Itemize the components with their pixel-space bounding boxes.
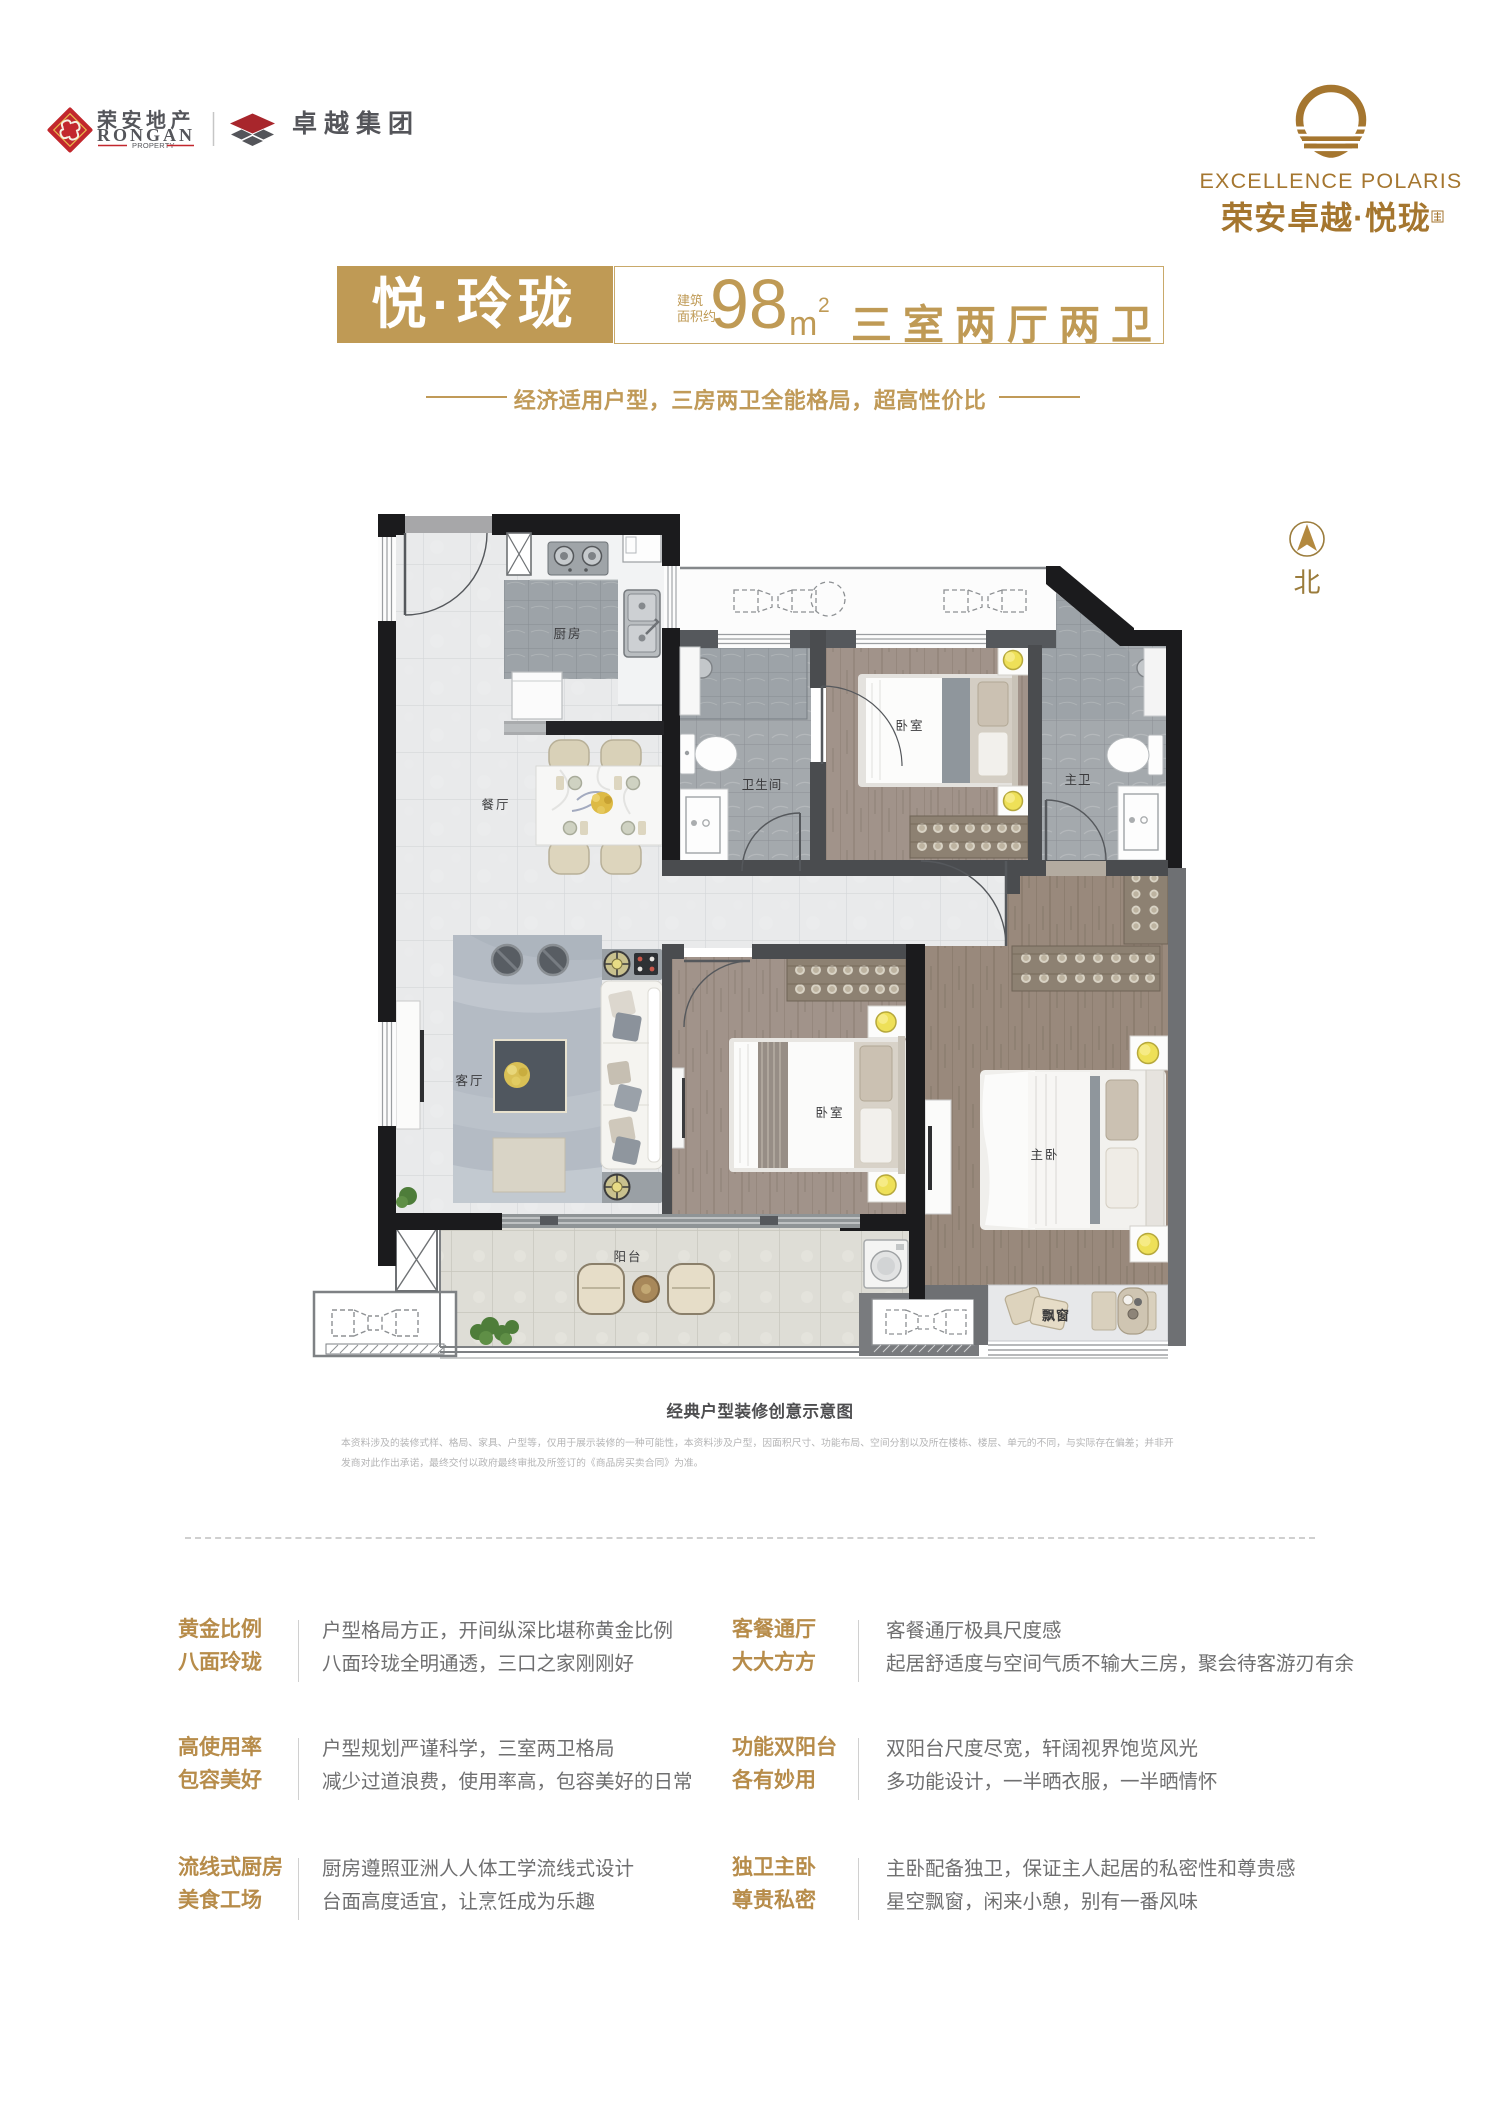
svg-text:厨房: 厨房 <box>553 626 582 641</box>
svg-text:主卫: 主卫 <box>1064 773 1091 787</box>
svg-text:荣安卓越·悦珑: 荣安卓越·悦珑 <box>1221 200 1431 236</box>
svg-text:飘窗: 飘窗 <box>1042 1308 1070 1323</box>
svg-text:主卧: 主卧 <box>1030 1148 1059 1162</box>
svg-text:卫生间: 卫生间 <box>742 778 783 792</box>
svg-text:餐厅: 餐厅 <box>481 797 510 812</box>
svg-text:北: 北 <box>1294 568 1321 598</box>
svg-text:卧室: 卧室 <box>895 718 924 733</box>
svg-text:卓越集团: 卓越集团 <box>292 109 420 138</box>
svg-text:卧室: 卧室 <box>815 1105 844 1120</box>
svg-text:EXCELLENCE POLARIS: EXCELLENCE POLARIS <box>1200 169 1463 193</box>
svg-text:客厅: 客厅 <box>455 1073 484 1088</box>
svg-text:阳台: 阳台 <box>613 1249 642 1264</box>
